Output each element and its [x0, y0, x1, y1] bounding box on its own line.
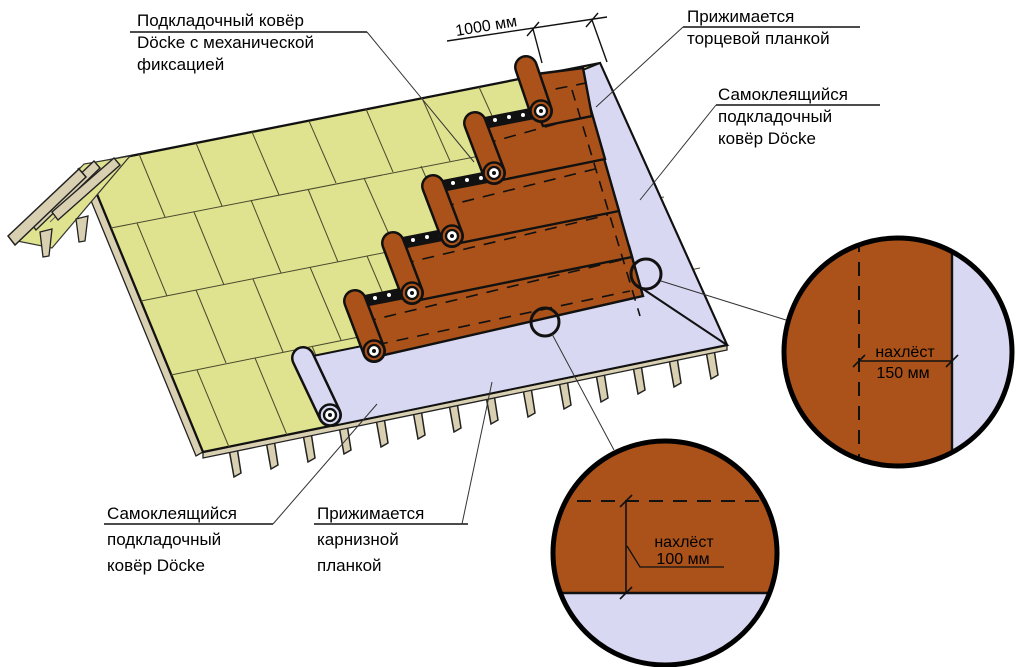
- underlayment-course: [521, 67, 592, 126]
- label-text: Прижимается: [317, 504, 424, 523]
- rafter-tail: [40, 229, 52, 257]
- label-text: подкладочный: [107, 530, 221, 549]
- label-text: Подкладочный ковёр: [137, 11, 304, 30]
- label-text: Прижимается: [687, 7, 794, 26]
- overlap-100-word: нахлёст: [654, 534, 714, 551]
- leader-line: [596, 27, 683, 107]
- label-text: ковёр Döcke: [718, 129, 816, 148]
- dimension-1000mm-label: 1000 мм: [454, 13, 518, 40]
- label-text: планкой: [317, 556, 382, 575]
- label-text: подкладочный: [718, 107, 832, 126]
- roofing-underlayment-diagram: 1000 мм нахлёст 150 мм нахлёст 100 мм: [0, 0, 1024, 667]
- diagram-canvas: 1000 мм нахлёст 150 мм нахлёст 100 мм: [0, 0, 1024, 667]
- label-text: Самоклеящийся: [107, 504, 237, 523]
- label-text: фиксацией: [137, 55, 224, 74]
- label-text: торцевой планкой: [687, 29, 830, 48]
- label-self-adhesive-right: Самоклеящийся подкладочный ковёр Döcke: [640, 85, 880, 200]
- label-text: Döcke с механической: [137, 33, 314, 52]
- label-text: Самоклеящийся: [718, 85, 848, 104]
- overlap-150-value: 150 мм: [876, 365, 929, 382]
- rafter-tail: [76, 216, 88, 242]
- overlap-150-word: нахлёст: [875, 344, 935, 361]
- label-text: ковёр Döcke: [107, 556, 205, 575]
- overlap-100-value: 100 мм: [656, 551, 709, 568]
- detail-circle-side-overlap: нахлёст 150 мм: [784, 238, 1014, 466]
- leader-line: [640, 105, 716, 200]
- label-text: карнизной: [317, 530, 399, 549]
- detail-circle-bottom-overlap: нахлёст 100 мм: [553, 441, 777, 665]
